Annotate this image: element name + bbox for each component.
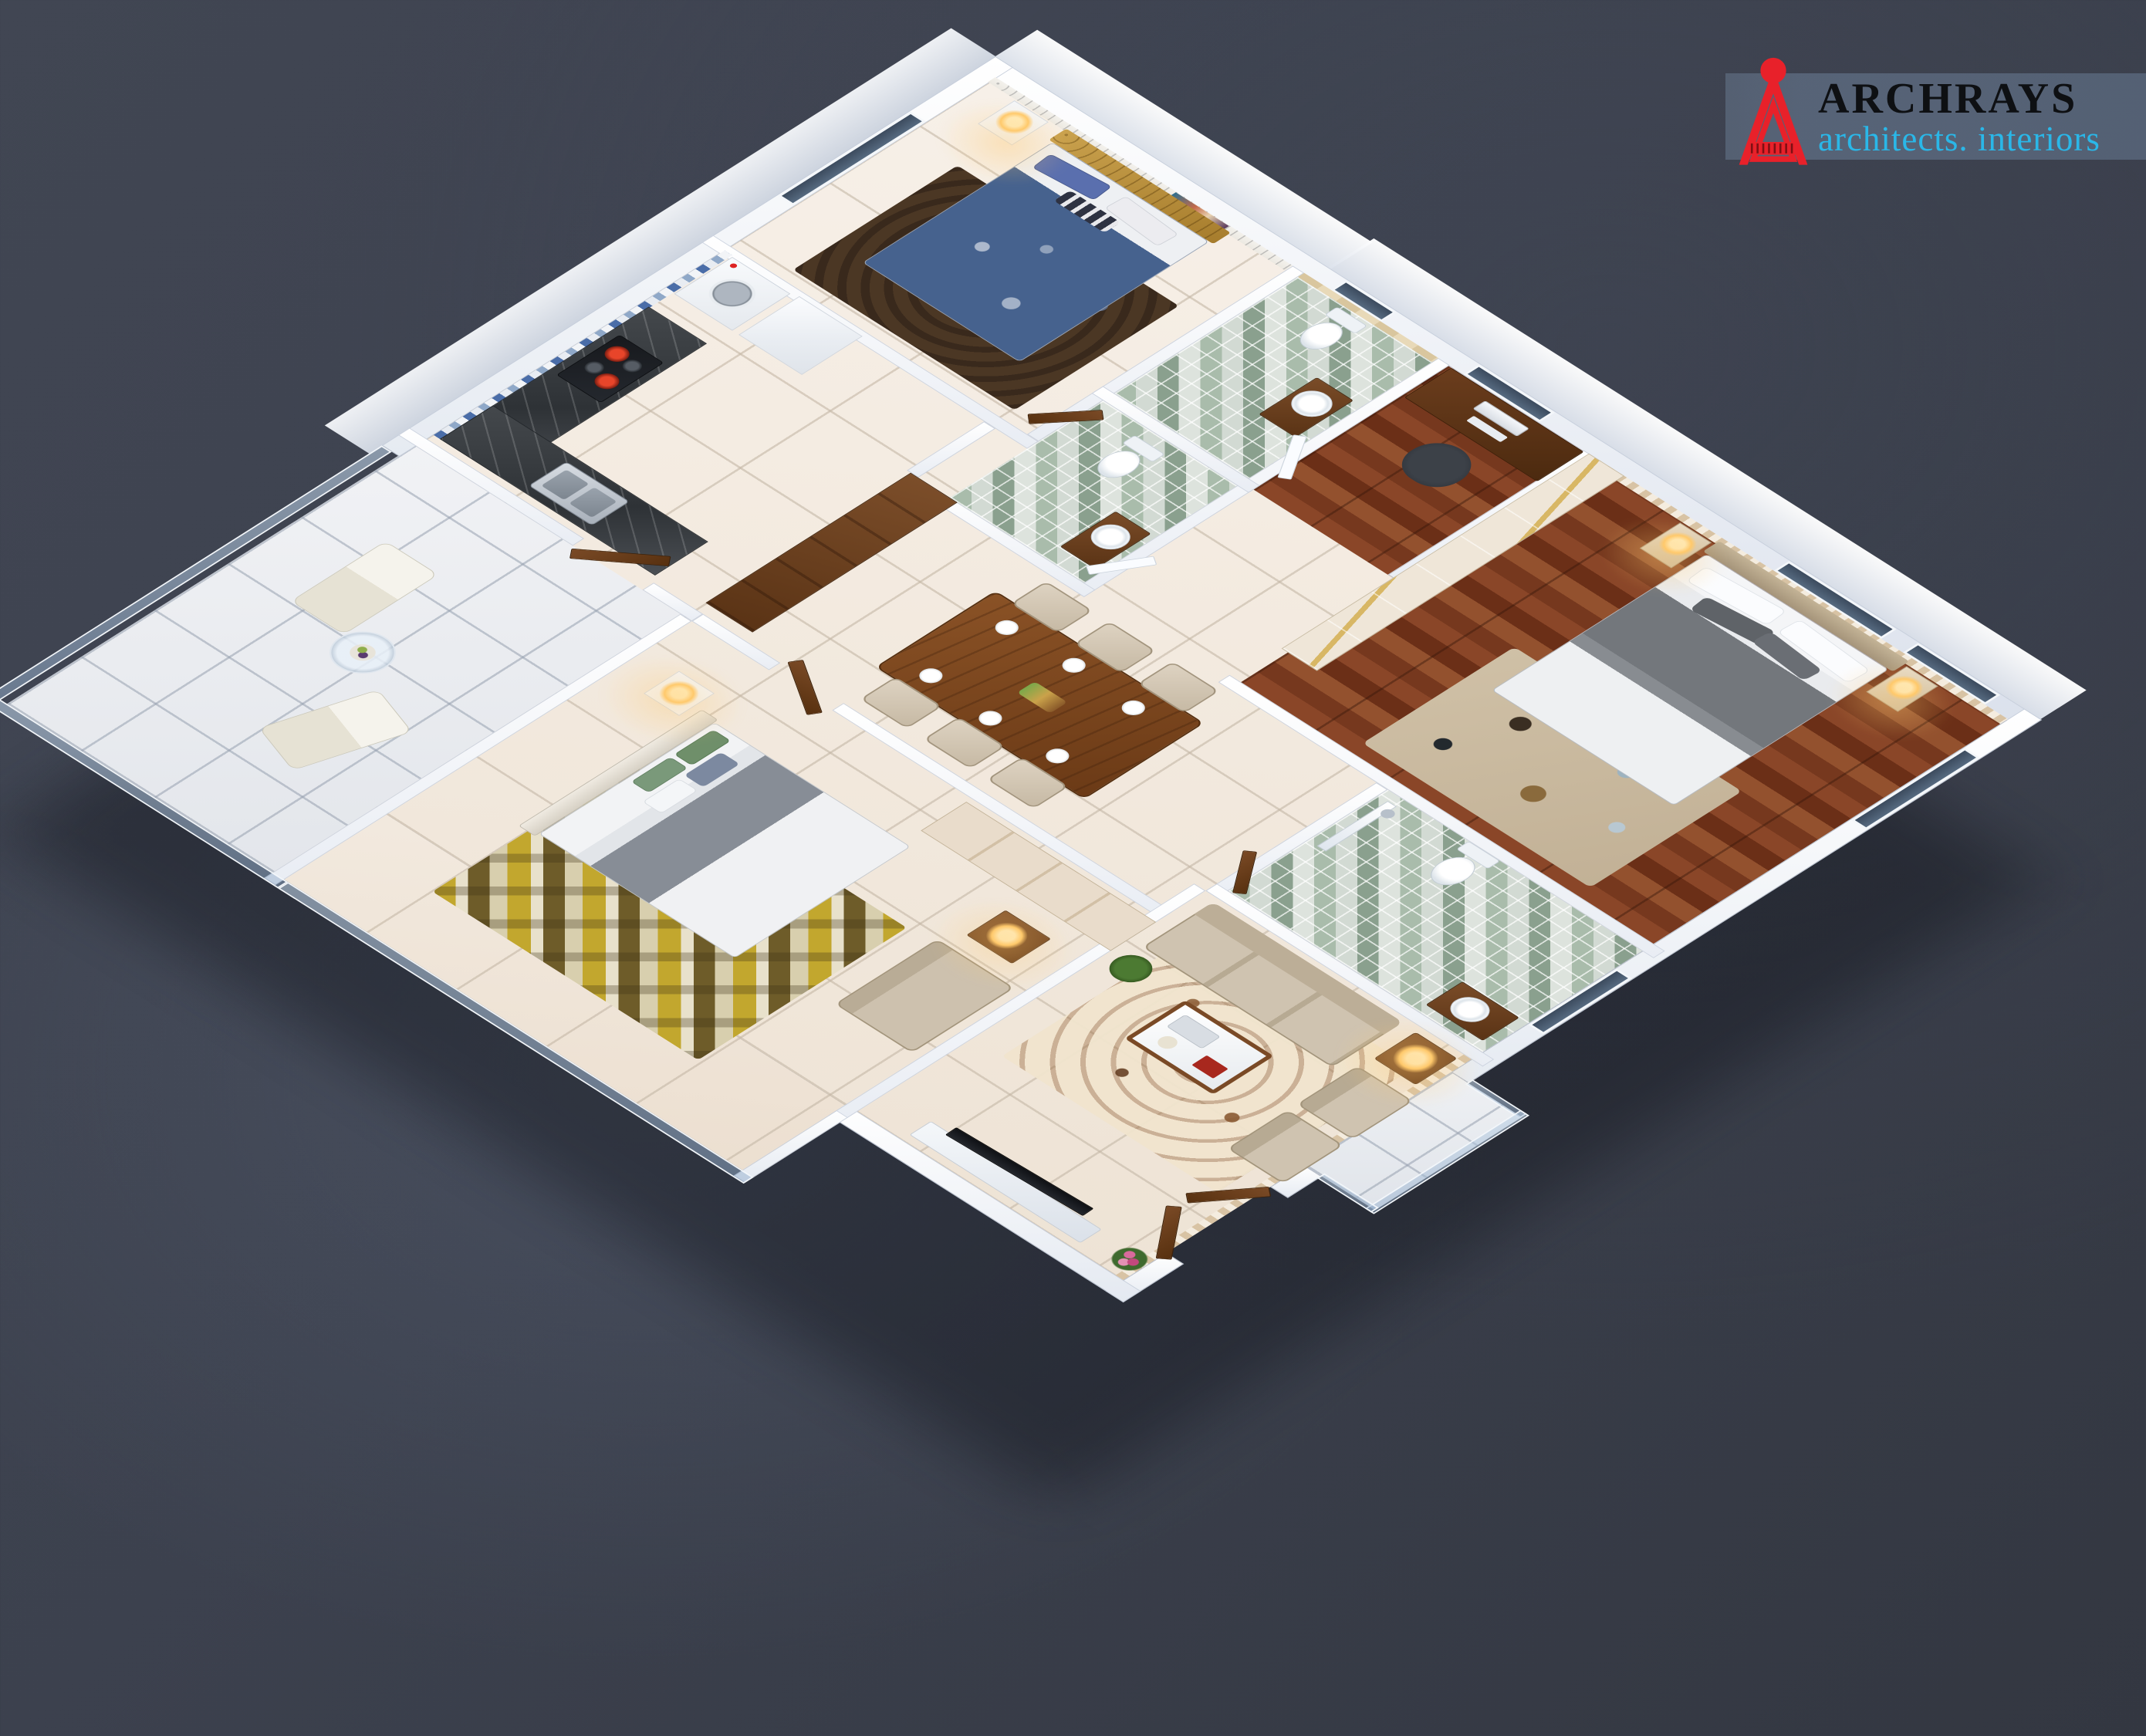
render-canvas: { "branding": { "logo_title": "ARCHRAYS"…	[0, 0, 2146, 1736]
logo-title: ARCHRAYS	[1818, 77, 2100, 120]
drafting-compass-icon	[1730, 56, 1816, 171]
scene-stage: ARCHRAYS architects. interiors	[0, 0, 2146, 1736]
logo-tagline: architects. interiors	[1818, 122, 2100, 157]
logo-band: ARCHRAYS architects. interiors	[1725, 73, 2146, 160]
logo-text: ARCHRAYS architects. interiors	[1818, 77, 2100, 157]
